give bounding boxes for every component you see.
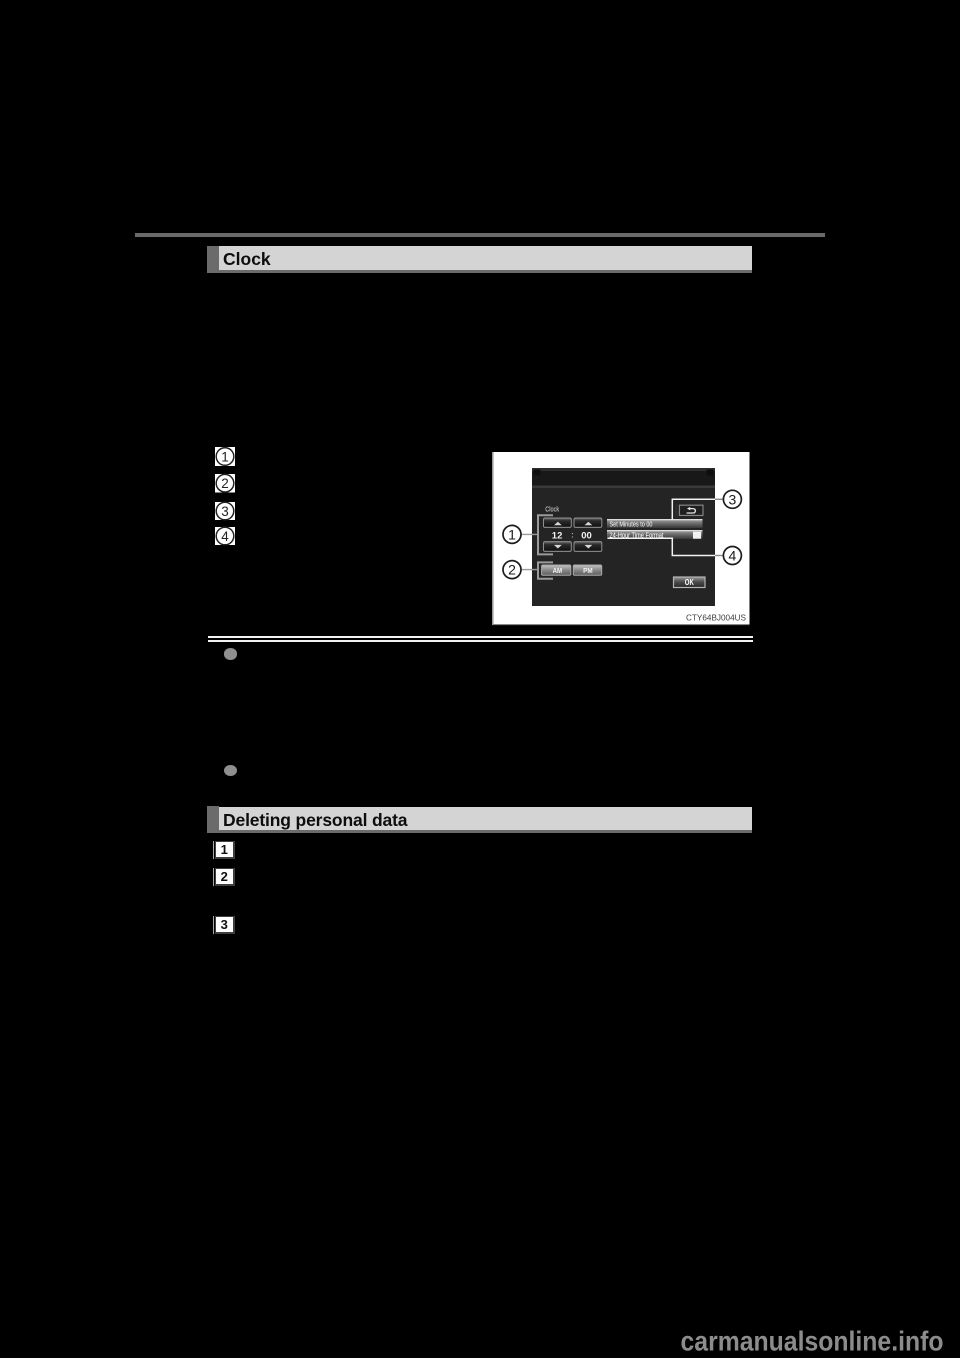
svg-text:OK: OK: [685, 578, 694, 587]
svg-text:3: 3: [221, 504, 229, 519]
svg-text:12: 12: [552, 530, 563, 541]
svg-text:1: 1: [508, 526, 516, 542]
svg-text:PM: PM: [583, 566, 593, 575]
svg-text:00: 00: [581, 530, 592, 541]
svg-text:4: 4: [221, 529, 229, 544]
svg-text:1: 1: [221, 449, 229, 464]
svg-text:carmanualsonline.info: carmanualsonline.info: [681, 1326, 944, 1357]
svg-text:CTY64BJ004US: CTY64BJ004US: [686, 613, 746, 623]
svg-text:3: 3: [729, 491, 737, 507]
svg-text:Clock: Clock: [545, 507, 559, 514]
svg-text::: :: [571, 530, 574, 539]
svg-text:Set Minutes to 00: Set Minutes to 00: [610, 520, 653, 529]
svg-text:AM: AM: [553, 566, 563, 575]
svg-text:4: 4: [729, 548, 737, 564]
svg-text:2: 2: [508, 562, 516, 578]
svg-text:2: 2: [221, 476, 229, 491]
